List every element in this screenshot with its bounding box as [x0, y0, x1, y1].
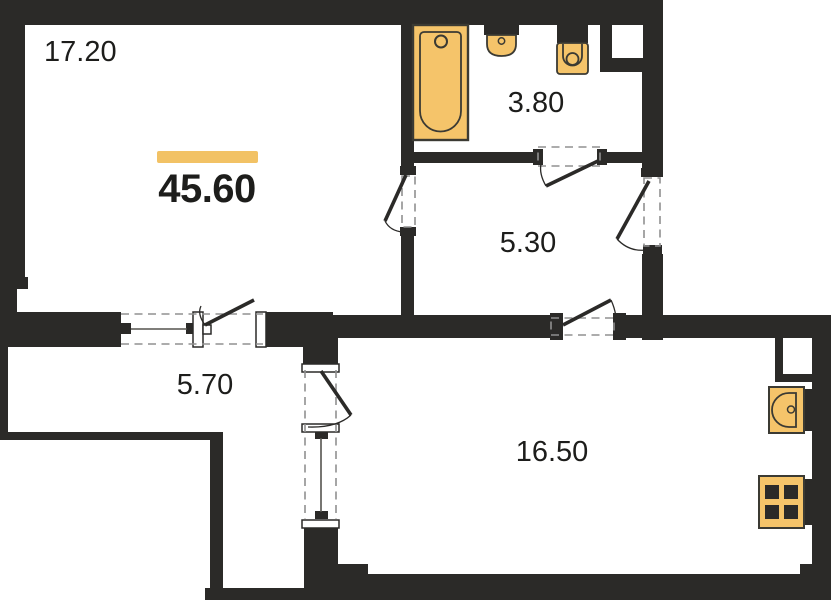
- washbasin-icon: [484, 25, 519, 56]
- wall-segment: [775, 374, 812, 382]
- room-area-label-bathroom: 3.80: [508, 86, 564, 121]
- glazing-post: [315, 511, 328, 519]
- door-arc: [541, 164, 546, 186]
- door-post: [400, 166, 416, 175]
- stove-burner: [765, 505, 779, 519]
- glazing-post: [118, 323, 131, 334]
- wall-segment: [0, 0, 663, 25]
- wall-segment: [210, 433, 223, 595]
- door-leaf: [546, 161, 598, 186]
- stove-icon: [759, 476, 812, 528]
- door-frame: [203, 325, 211, 334]
- glazed-partitions: [131, 329, 321, 512]
- stove-burner: [784, 505, 798, 519]
- door-post: [641, 168, 663, 177]
- wall-segment: [0, 282, 17, 313]
- wall-segment: [800, 564, 812, 575]
- kitchen-wall-niche: [783, 338, 812, 374]
- door-swing-entry-hall: [200, 300, 254, 325]
- wall-segment: [642, 254, 663, 340]
- wall-segment: [0, 312, 121, 347]
- door-frame: [193, 312, 203, 347]
- room-area-label-entry-hall: 5.70: [177, 368, 233, 403]
- door-frame: [302, 364, 339, 372]
- wall-segment: [401, 232, 414, 315]
- total-area-label: 45.60: [158, 165, 256, 213]
- floor-plan-drawing: [0, 0, 831, 600]
- door-leaf: [563, 300, 611, 325]
- door-swing-entrance: [617, 181, 649, 250]
- stove-burner: [765, 485, 779, 499]
- floor-plan: 17.20 3.80 5.30 5.70 16.50 45.60: [0, 0, 831, 600]
- door-swing-living-room: [385, 175, 406, 232]
- total-area-accent-bar: [157, 151, 258, 163]
- wall-segment: [338, 564, 368, 575]
- kitchen-sink-icon: [769, 387, 812, 433]
- door-frame: [302, 424, 339, 432]
- door-arc: [617, 239, 646, 250]
- wall-segment: [17, 277, 28, 289]
- door-swing-partition: [308, 371, 351, 427]
- wall-segment: [605, 152, 663, 163]
- door-post: [613, 313, 626, 340]
- room-area-label-living-room: 17.20: [44, 35, 117, 70]
- door-swing-kitchen-hall: [563, 300, 616, 332]
- wall-segment: [338, 574, 831, 600]
- fixtures: [413, 25, 812, 528]
- wall-segment: [812, 315, 831, 600]
- wall-segment: [303, 338, 338, 367]
- wall-segment: [304, 528, 338, 600]
- wall-segment: [0, 25, 25, 282]
- toilet-icon: [557, 25, 588, 74]
- door-leaf: [205, 300, 254, 325]
- door-frame: [302, 520, 339, 528]
- door-post: [550, 313, 563, 340]
- bathroom-wall-niche: [612, 25, 643, 58]
- bathtub-icon: [413, 25, 468, 140]
- room-area-label-inner-hall: 5.30: [500, 226, 556, 261]
- door-frame: [256, 312, 266, 347]
- door-swings: [200, 161, 649, 427]
- stove-burner: [784, 485, 798, 499]
- wall-segment: [775, 338, 783, 374]
- door-swing-bathroom: [541, 161, 598, 186]
- wall-segment: [401, 152, 533, 163]
- wall-segment: [0, 432, 223, 440]
- door-leaf: [385, 175, 406, 221]
- wall-segment: [330, 315, 552, 338]
- room-area-label-kitchen-living-room: 16.50: [516, 435, 589, 470]
